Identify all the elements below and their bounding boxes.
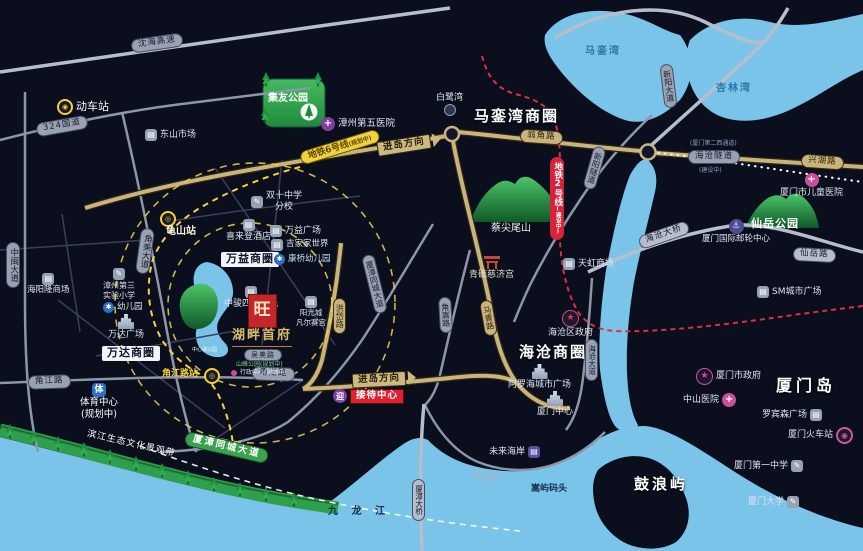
bay-label-xinglin: 杏林湾 [716, 83, 752, 95]
market-icon: ▤ [42, 273, 54, 285]
project-name: 湖畔首府 [232, 329, 292, 347]
mall-icon: ▤ [271, 239, 283, 251]
reception-center: 迎接待中心 [333, 389, 404, 404]
poi-zhongshan-hospital: 中山医院+ [683, 393, 736, 407]
po i-children-hospital: +厦门市儿童医院 [780, 173, 843, 198]
lake-park-label: 中心湖公园 [192, 348, 217, 354]
mall-icon: ▤ [757, 286, 769, 298]
poi-bailuwan: 白鹭湾 [436, 93, 463, 116]
train-station-icon: ◉ [836, 427, 853, 444]
hotel-icon: ▤ [243, 219, 255, 231]
hospital-icon: + [321, 117, 335, 131]
pier-label-songyu: 嵩屿码头 [531, 484, 567, 494]
poi-wanda-plaza: 万达广场 [108, 314, 144, 340]
skyscraper-icon [118, 314, 134, 329]
road-label-wumei: 吴美路 [244, 349, 282, 361]
road-label-wengjiao: 翁角路 [520, 129, 563, 146]
poi-shanfeng-park: 山峰公园(规划中) [236, 362, 283, 369]
road-label-xiazhang-bridge: 厦漳大桥 [412, 479, 425, 521]
reception-icon: 迎 [333, 389, 347, 403]
road-label-hongdai: 洪岱路 [333, 298, 346, 334]
poi-aluohai: 阿罗海城市广场 [508, 364, 571, 390]
poi-yangguangcheng: ▤阳光城凡尔赛宫 [296, 296, 326, 327]
project-seal: 旺 [248, 294, 277, 328]
poi-youeryuan: ✱幼儿园 [103, 302, 143, 313]
mall-icon: ▤ [270, 225, 282, 237]
road-label-jiaosong: 角嵩路 [438, 297, 453, 334]
road-label-zhongmin: 中闽大道 [6, 242, 20, 288]
kindergarten-icon: ✱ [274, 254, 285, 265]
skyscraper-icon [547, 391, 563, 406]
residence-icon: ▤ [528, 446, 540, 458]
poi-tianhong: ▤天虹商场 [563, 258, 614, 270]
circle-haicang: 海沧商圈 [519, 344, 587, 361]
hospital-icon: + [722, 393, 736, 407]
road-label-xianyue: 仙岳路 [793, 247, 836, 263]
island-label-gulangyu: 鼓浪屿 [634, 476, 688, 493]
temple-icon [484, 256, 500, 269]
guishan-station-icon: ◎ [160, 211, 176, 227]
school-icon: ✎ [791, 460, 803, 472]
mountain-label-caijianwei: 蔡尖尾山 [491, 223, 531, 235]
government-star-icon: ★ [696, 368, 713, 385]
project-logo: 旺 湖畔首府 [232, 294, 292, 347]
road-label-haicang-tunnel: 海沧隧道 [688, 150, 740, 164]
bay-label-maluan: 马銮湾 [585, 46, 621, 58]
tunnel-junction [641, 145, 656, 160]
location-map: 沈海高速 324国道 中闽大道 角美大道 角江路 角江路 翁角路 新阳大道 新阳… [0, 0, 863, 551]
poi-haiyanglong: ▤海阳隆商场 [27, 273, 70, 296]
poi-xiamen-university: 厦门大学✎ [748, 496, 799, 508]
poi-zhangzhou5-hospital: +漳州第五医院 [321, 117, 395, 131]
road-label-jiaojiang-west: 角江路 [28, 374, 71, 389]
poi-jijia: ▤吉家家世界 [271, 239, 329, 251]
circle-maluanwan: 马銮湾商圈 [474, 108, 559, 125]
residence-icon: ▤ [305, 296, 317, 308]
poi-xiamen-center: 厦门中心 [537, 391, 573, 417]
poi-wanyi-plaza: ▤万益广场 [270, 225, 321, 237]
island-label-xiamen: 厦门岛 [776, 377, 836, 395]
poi-sheraton: ▤喜来登酒店 [226, 219, 271, 242]
road-label-tunnel-status: (建设中) [699, 168, 722, 175]
arrowhead-icon [408, 371, 417, 385]
school-icon: ✎ [787, 496, 799, 508]
circle-wanda: 万达商圈 [102, 346, 160, 361]
school-icon: ✎ [251, 196, 263, 208]
poi-xiamen-train-station: 厦门火车站◉ [788, 427, 853, 444]
poi-kangqiao-kindergarten: ✱康桥幼儿园 [274, 254, 331, 265]
poi-xiamen-gov: ★厦门市政府 [696, 368, 761, 385]
bailuwan-icon [444, 104, 456, 116]
metro-line2-badge: 地铁2号线(建设中) [550, 157, 564, 240]
dot-icon [231, 370, 237, 376]
train-station-icon: ◉ [57, 99, 73, 115]
poi-sports-center: 体体育中心(规划中) [80, 383, 118, 421]
skyscraper-icon [532, 364, 548, 379]
kindergarten-icon: ✱ [103, 302, 114, 313]
mall-icon: ▤ [810, 409, 822, 421]
poi-dongshan-market: ▤东山市场 [145, 129, 196, 141]
government-star-icon: ★ [562, 310, 579, 327]
poi-sm-plaza: ▤SM城市广场 [757, 286, 821, 298]
anchor-icon: ⚓ [729, 219, 744, 234]
strait-water [599, 159, 656, 431]
jiaojiang-station-icon: ◎ [204, 368, 220, 384]
poi-no1-school: 厦门第一中学✎ [734, 460, 803, 472]
road-label-tunnel-alias: (厦门第二西通道) [690, 141, 737, 148]
poi-haicang-gov: ★海沧区政府 [548, 310, 593, 338]
poi-train-station: ◉动车站 [57, 99, 109, 115]
caijianwei-mountain [470, 177, 562, 222]
sports-icon: 体 [92, 383, 106, 397]
roundabout-junction [445, 127, 459, 141]
guishan-station-label: 龟山站 [166, 226, 196, 238]
poi-cruise-center: ⚓厦门国际邮轮中心 [702, 219, 770, 245]
poi-zhangzhou3-school: ✎漳州第三实验小学 [103, 268, 135, 300]
market-icon: ▤ [145, 129, 157, 141]
poi-shuangshi-school: ✎双十中学分校 [251, 191, 302, 213]
poi-qingjiao-temple: 青礁慈济宫 [469, 256, 514, 280]
school-icon: ✎ [113, 268, 125, 280]
poi-robinson: 罗宾森广场▤ [762, 409, 822, 421]
hospital-icon: + [805, 173, 819, 187]
jiaojiang-station-label: 角江路站 [162, 369, 198, 379]
park-label-jiyou: 集友公园 [268, 93, 308, 105]
poi-xingzheng-center: 行政中心(规划中) [231, 370, 287, 377]
river-label-jiulong: 九 龙 江 [328, 506, 390, 518]
road-label-xinghu: 兴湖路 [801, 154, 844, 171]
mall-icon: ▤ [563, 258, 575, 270]
circle-wanyi: 万益商圈 [221, 252, 279, 267]
poi-weilai-coast: 未来海岸▤ [489, 446, 540, 458]
